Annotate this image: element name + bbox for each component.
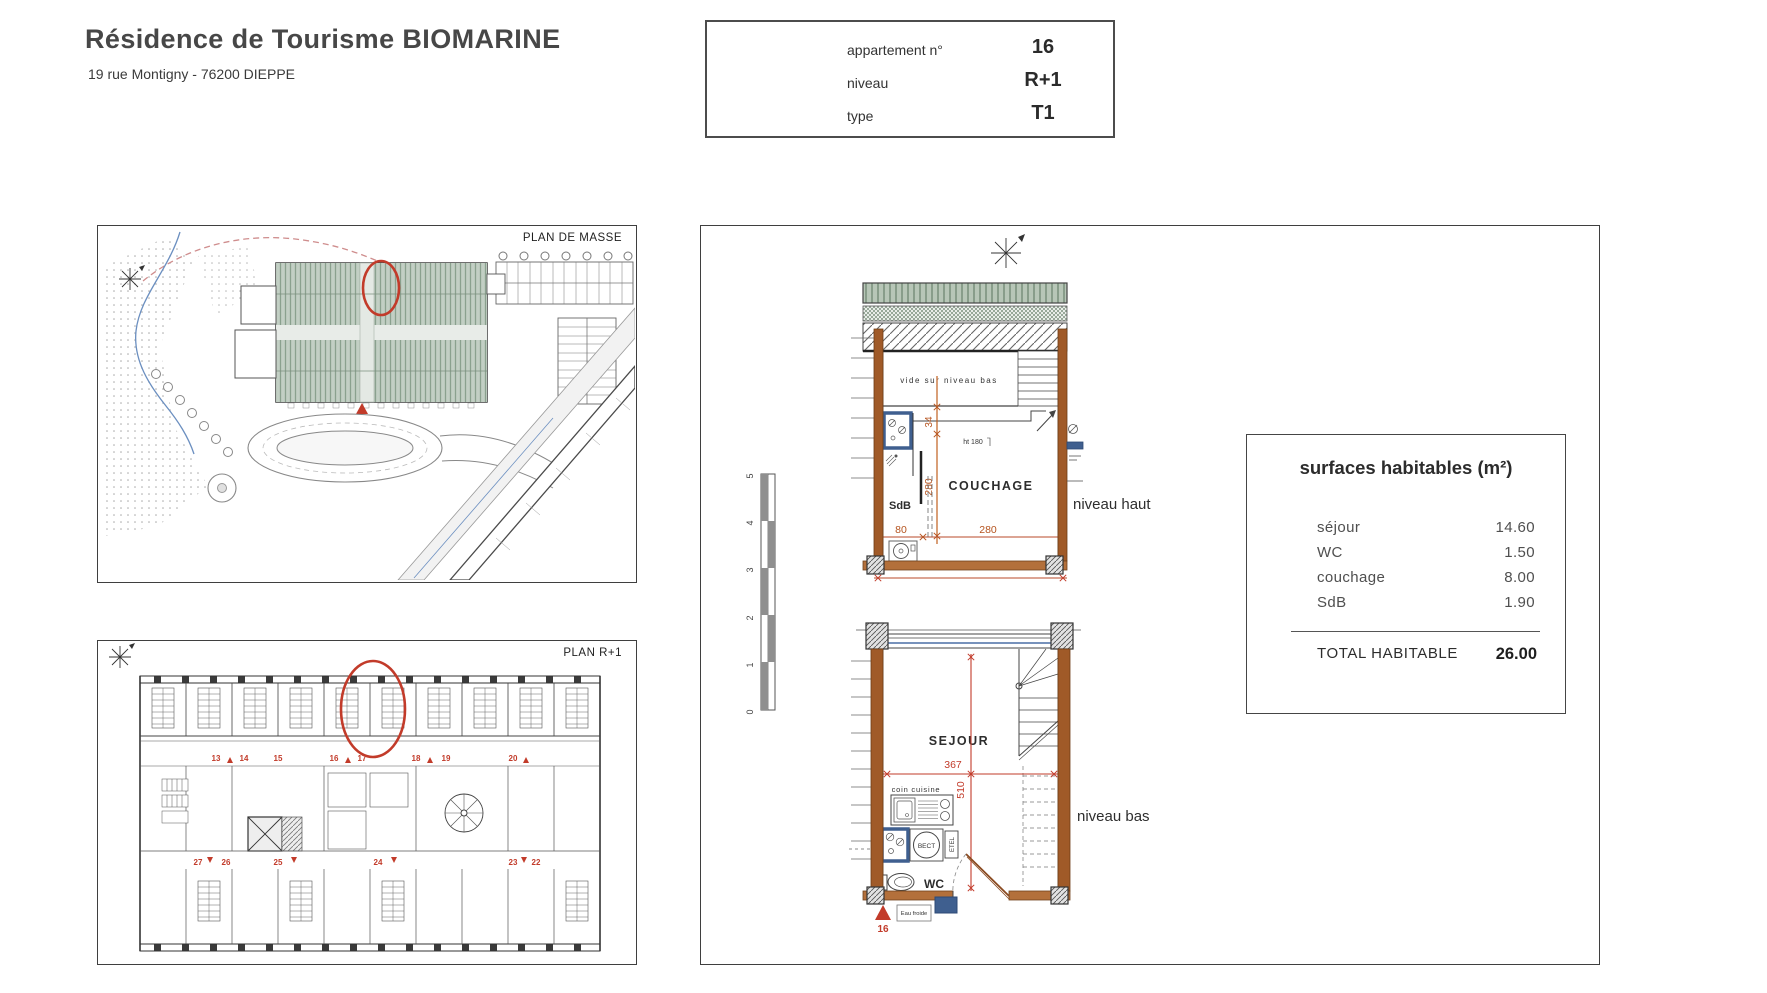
apartment-number-value: 16 [1007, 36, 1079, 59]
upper-level-plan: vide sur niveau bas ht 180 34 280 [851, 283, 1083, 581]
svg-text:27: 27 [194, 858, 203, 867]
washbasin-unit-lower [882, 829, 908, 861]
kitchen-unit [891, 795, 953, 825]
svg-text:23: 23 [509, 858, 518, 867]
water-heater-bect: BECT [910, 829, 943, 861]
door-markers-bottom [207, 857, 527, 863]
elevator-core [248, 817, 302, 851]
entry-door [953, 854, 1009, 900]
surface-row-sdb: SdB 1.90 [1247, 594, 1565, 619]
timber-post-left [874, 329, 883, 561]
svg-text:18: 18 [412, 754, 421, 763]
level-value: R+1 [1007, 69, 1079, 92]
svg-text:BECT: BECT [918, 843, 935, 850]
scale-bar: 5 4 3 2 1 0 [745, 473, 775, 714]
svg-text:34: 34 [924, 416, 935, 428]
svg-text:ETEL: ETEL [950, 836, 956, 852]
electrical-panel-etel: ETEL [945, 831, 958, 858]
floor-plan-panel: PLAN R+1 [97, 640, 637, 965]
niveau-haut-label: niveau haut [1073, 496, 1151, 513]
svg-text:2: 2 [745, 615, 755, 620]
surface-row-wc: WC 1.50 [1247, 544, 1565, 569]
svg-text:Eau froide: Eau froide [901, 911, 927, 917]
room-label-wc: WC [924, 877, 944, 891]
info-row-apartment: appartement n° 16 [707, 34, 1113, 67]
washbasin-unit-upper [884, 413, 911, 448]
svg-text:3: 3 [745, 567, 755, 572]
svg-text:280: 280 [979, 524, 997, 536]
room-label-sdb: SdB [889, 500, 911, 512]
svg-text:19: 19 [442, 754, 451, 763]
room-label-couchage: COUCHAGE [949, 479, 1034, 493]
surfaces-title: surfaces habitables (m²) [1247, 457, 1565, 479]
surface-value: 1.90 [1504, 594, 1535, 619]
parking-top [496, 252, 633, 304]
svg-text:14: 14 [240, 754, 249, 763]
timber-post-right [1058, 329, 1067, 561]
info-row-type: type T1 [707, 100, 1113, 133]
room-label-sejour: SEJOUR [929, 734, 989, 748]
svg-text:510: 510 [955, 781, 967, 799]
surface-value: 14.60 [1495, 519, 1535, 544]
apartment-detail-panel: vide sur niveau bas ht 180 34 280 [700, 225, 1600, 965]
svg-text:24: 24 [374, 858, 383, 867]
svg-text:1: 1 [745, 662, 755, 667]
surface-label: séjour [1317, 519, 1360, 544]
site-plan-panel: PLAN DE MASSE [97, 225, 637, 583]
lower-level-plan: SEJOUR 510 367 coin cuisine [849, 623, 1081, 935]
roof-slope-ticks [851, 338, 874, 478]
door-markers-top [227, 757, 529, 763]
surface-value: 1.50 [1504, 544, 1535, 569]
apartment-info-box: appartement n° 16 niveau R+1 type T1 [705, 20, 1115, 138]
surface-row-couchage: couchage 8.00 [1247, 569, 1565, 594]
floor-slab-upper [863, 561, 1067, 570]
wall-symbols-right [1067, 425, 1083, 482]
type-label: type [847, 108, 873, 124]
stairs-lower [1016, 649, 1058, 886]
svg-text:4: 4 [745, 520, 755, 525]
divider [1291, 631, 1540, 632]
compass-star-icon [991, 234, 1025, 268]
dim-vertical-upper: 34 280 [923, 376, 940, 544]
surface-label: WC [1317, 544, 1343, 569]
total-label: TOTAL HABITABLE [1317, 645, 1458, 664]
svg-text:0: 0 [745, 709, 755, 714]
svg-text:15: 15 [274, 754, 283, 763]
surface-row-sejour: séjour 14.60 [1247, 519, 1565, 544]
svg-text:26: 26 [222, 858, 231, 867]
timber-post-left-lower [871, 649, 883, 891]
surface-label: couchage [1317, 569, 1385, 594]
unit-numbers-bottom: 27 26 25 24 23 22 [194, 858, 541, 867]
floor-plan-title: PLAN R+1 [563, 647, 622, 659]
page-address: 19 rue Montigny - 76200 DIEPPE [88, 66, 295, 82]
type-value: T1 [1007, 102, 1079, 125]
surfaces-table: surfaces habitables (m²) séjour 14.60 WC… [1246, 434, 1566, 714]
surface-value: 8.00 [1504, 569, 1535, 594]
total-value: 26.00 [1496, 645, 1537, 664]
cold-water-fixture [935, 897, 957, 913]
vide-note: vide sur niveau bas [900, 376, 997, 385]
coin-cuisine-label: coin cuisine [892, 785, 941, 794]
svg-text:25: 25 [274, 858, 283, 867]
building-structure [140, 676, 600, 951]
cold-water-note: Eau froide [897, 905, 931, 921]
roundabout [208, 474, 236, 502]
stairs-upper [1018, 351, 1058, 431]
surfaces-total-row: TOTAL HABITABLE 26.00 [1247, 645, 1565, 664]
info-row-level: niveau R+1 [707, 67, 1113, 100]
svg-text:22: 22 [532, 858, 541, 867]
svg-text:367: 367 [944, 759, 962, 771]
main-building [235, 263, 505, 408]
page-title: Résidence de Tourisme BIOMARINE [85, 24, 561, 55]
washbasin-round [889, 541, 917, 561]
shower-head-icon [886, 455, 897, 466]
apartment-number-label: appartement n° [847, 42, 943, 58]
svg-text:280: 280 [923, 478, 935, 496]
svg-text:20: 20 [509, 754, 518, 763]
site-plan-drawing [98, 226, 635, 580]
apartment-entry-triangle [875, 905, 891, 920]
spiral-stair [445, 794, 483, 832]
storage-units [162, 779, 188, 823]
apartment-entry-number: 16 [877, 924, 889, 935]
site-plan-title: PLAN DE MASSE [523, 232, 622, 244]
height-note: ht 180 [963, 439, 983, 446]
timber-post-right-lower [1058, 649, 1070, 891]
floor-plan-drawing: 13 14 15 16 17 18 19 20 27 26 25 24 23 2… [98, 641, 635, 962]
wall-ticks-left [849, 661, 872, 859]
level-label: niveau [847, 75, 888, 91]
svg-text:13: 13 [212, 754, 221, 763]
niveau-bas-label: niveau bas [1077, 808, 1150, 825]
compass-star-icon [109, 643, 135, 668]
svg-text:5: 5 [745, 473, 755, 478]
toilet-fixture [880, 874, 914, 891]
svg-text:80: 80 [895, 524, 907, 536]
svg-text:16: 16 [330, 754, 339, 763]
surface-label: SdB [1317, 594, 1347, 619]
dim-horizontal-upper: 80 280 [876, 524, 1065, 540]
